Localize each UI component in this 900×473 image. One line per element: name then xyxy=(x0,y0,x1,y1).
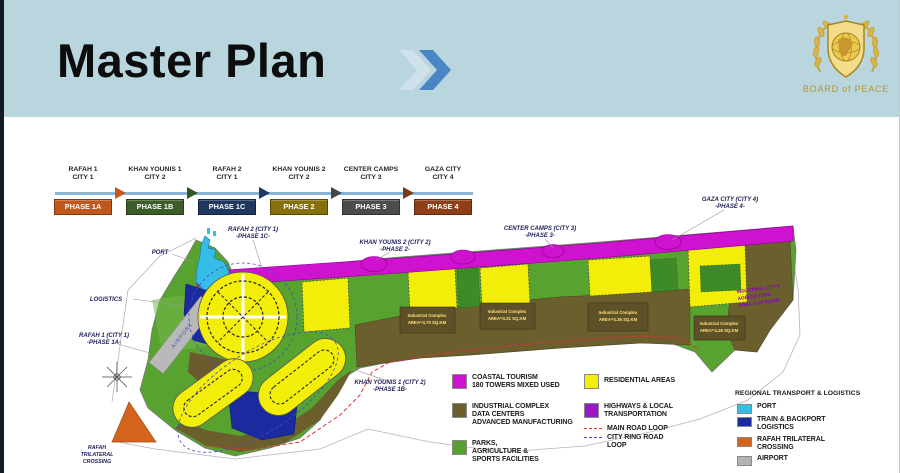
left-edge-bar xyxy=(0,0,4,473)
timeline-name: RAFAH 2 xyxy=(212,166,241,173)
timeline-city: CITY 1 xyxy=(72,174,93,181)
svg-text:AREA=4.36 SQ.KM: AREA=4.36 SQ.KM xyxy=(599,317,638,322)
legend-parks: PARKS,AGRICULTURE &SPORTS FACILITIES xyxy=(452,440,539,464)
industrial-swatch xyxy=(452,403,467,418)
timeline-city: CITY 3 xyxy=(360,174,381,181)
svg-text:RAFAH 1 (CITY 1): RAFAH 1 (CITY 1) xyxy=(79,333,129,339)
legend-crossing: RAFAH TRILATERALCROSSING xyxy=(737,436,825,452)
svg-text:Industrial Complex: Industrial Complex xyxy=(408,313,447,318)
coastal-swatch xyxy=(452,374,467,389)
svg-text:-PHASE 4-: -PHASE 4- xyxy=(715,204,745,210)
legend-city-ring-road: CITY RING ROADLOOP xyxy=(584,434,663,450)
arrow-icon xyxy=(259,187,270,199)
svg-text:Industrial Complex: Industrial Complex xyxy=(700,321,739,326)
legend-airport: AIRPORT xyxy=(737,455,788,466)
timeline-name: RAFAH 1 xyxy=(68,166,97,173)
timeline-city: CITY 2 xyxy=(288,174,309,181)
port-swatch xyxy=(737,404,752,414)
svg-text:RAFAH: RAFAH xyxy=(88,445,106,451)
svg-text:-PHASE 1B-: -PHASE 1B- xyxy=(373,387,407,393)
timeline-name: GAZA CITY xyxy=(425,166,461,173)
double-chevron-icon xyxy=(393,48,455,92)
timeline-name: KHAN YOUNIS 1 xyxy=(128,166,181,173)
svg-text:-PHASE 1C-: -PHASE 1C- xyxy=(236,234,270,240)
city-ring-dash-icon xyxy=(584,437,602,438)
svg-text:AREA=4.31 SQ.KM: AREA=4.31 SQ.KM xyxy=(488,316,527,321)
svg-text:-PHASE 3-: -PHASE 3- xyxy=(525,233,555,239)
timeline-name: CENTER CAMPS xyxy=(344,166,398,173)
timeline-city: CITY 4 xyxy=(432,174,453,181)
svg-text:Industrial Complex: Industrial Complex xyxy=(599,310,638,315)
svg-text:KHAN YOUNIS 2 (CITY 2): KHAN YOUNIS 2 (CITY 2) xyxy=(359,240,430,246)
page-title: Master Plan xyxy=(57,33,326,88)
airport-swatch xyxy=(737,456,752,466)
timeline-city: CITY 2 xyxy=(144,174,165,181)
svg-text:TRILATERAL: TRILATERAL xyxy=(81,452,114,458)
svg-text:AREA=4.26 SQ.KM: AREA=4.26 SQ.KM xyxy=(700,328,739,333)
legend-coastal-tourism: COASTAL TOURISM180 TOWERS MIXED USED xyxy=(452,374,560,390)
svg-text:LOGISTICS: LOGISTICS xyxy=(90,297,122,303)
legend-train: TRAIN & BACKPORTLOGISTICS xyxy=(737,416,825,432)
svg-text:CENTER CAMPS (CITY 3): CENTER CAMPS (CITY 3) xyxy=(504,226,576,232)
legend-industrial: INDUSTRIAL COMPLEXDATA CENTERSADVANCED M… xyxy=(452,403,573,427)
regional-legend-title: REGIONAL TRANSPORT & LOGISTICS xyxy=(735,390,860,397)
crossing-swatch xyxy=(737,437,752,447)
legend-highways: HIGHWAYS & LOCALTRANSPORTATION xyxy=(584,403,673,419)
board-of-peace-logo: BOARD of PEACE xyxy=(800,10,892,102)
svg-text:KHAN YOUNIS 1 (CITY 2): KHAN YOUNIS 1 (CITY 2) xyxy=(354,380,425,386)
legend-main-road-loop: MAIN ROAD LOOP xyxy=(584,425,668,433)
parks-swatch xyxy=(452,440,467,455)
legend-residential: RESIDENTIAL AREAS xyxy=(584,374,675,389)
svg-text:Industrial Complex: Industrial Complex xyxy=(488,309,527,314)
arrow-icon xyxy=(115,187,126,199)
arrow-icon xyxy=(187,187,198,199)
compass-icon xyxy=(102,362,132,392)
svg-text:-PHASE 2-: -PHASE 2- xyxy=(380,247,410,253)
svg-text:CROSSING: CROSSING xyxy=(83,459,111,465)
svg-text:AREA=4.70 SQ.KM: AREA=4.70 SQ.KM xyxy=(408,320,447,325)
arrow-icon xyxy=(403,187,414,199)
logo-text: BOARD of PEACE xyxy=(803,84,889,94)
highways-swatch xyxy=(584,403,599,418)
svg-text:RAFAH 2 (CITY 1): RAFAH 2 (CITY 1) xyxy=(228,227,278,233)
svg-text:GAZA CITY (CITY 4): GAZA CITY (CITY 4) xyxy=(702,197,758,203)
main-road-dash-icon xyxy=(584,428,602,429)
timeline-city: CITY 1 xyxy=(216,174,237,181)
residential-swatch xyxy=(584,374,599,389)
arrow-icon xyxy=(331,187,342,199)
legend-port: PORT xyxy=(737,403,776,414)
svg-text:-PHASE 1A-: -PHASE 1A- xyxy=(87,340,121,346)
svg-text:PORT: PORT xyxy=(152,250,170,256)
train-swatch xyxy=(737,417,752,427)
timeline-name: KHAN YOUNIS 2 xyxy=(272,166,325,173)
slide: Master Plan BOARD of PEACE xyxy=(0,0,900,473)
